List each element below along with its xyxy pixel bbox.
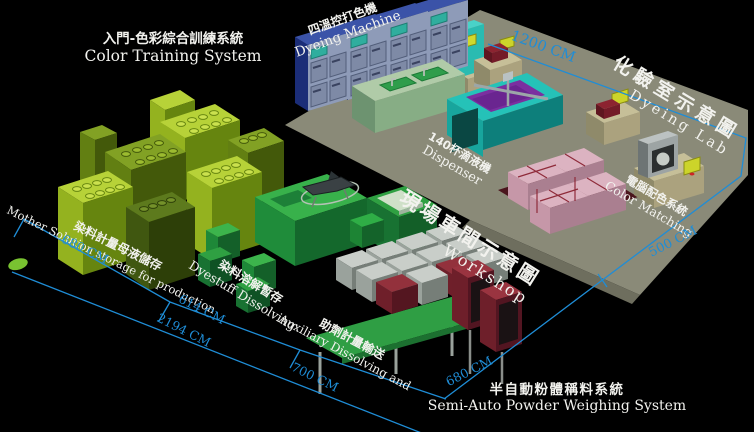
training-title-en: Color Training System — [85, 47, 262, 65]
label-powder-weighing: 半自動粉體稱料系統 Semi-Auto Powder Weighing Syst… — [428, 378, 686, 414]
label-training-title: 入門-色彩綜合訓練系統 Color Training System — [85, 27, 262, 65]
training-title-zh: 入門-色彩綜合訓練系統 — [85, 27, 262, 47]
spectrophotometer-sphere — [657, 153, 670, 166]
facility-layout-diagram: 入門-色彩綜合訓練系統 Color Training System 四溫控打色機… — [0, 0, 754, 432]
